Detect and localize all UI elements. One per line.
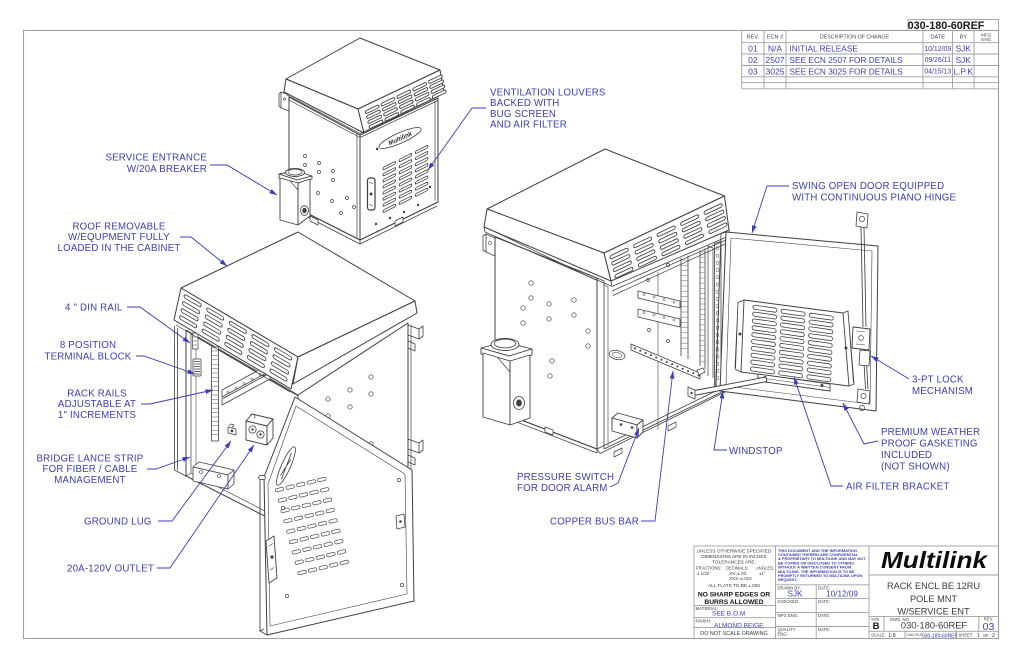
svg-text:3-PT LOCK: 3-PT LOCK [912,375,964,386]
svg-text:FOR DOOR ALARM: FOR DOOR ALARM [517,483,608,494]
svg-text:030-180-60REF: 030-180-60REF [908,20,985,32]
svg-text:LOADED IN THE CABINET: LOADED IN THE CABINET [58,243,181,254]
svg-text:ECN #: ECN # [767,35,784,41]
svg-text:COPPER BUS BAR: COPPER BUS BAR [550,517,639,528]
svg-text:10/12/09: 10/12/09 [826,590,858,599]
svg-text:REV.: REV. [747,35,760,41]
svg-text:PRESSURE SWITCH: PRESSURE SWITCH [517,472,614,483]
svg-text:ALMOND BEIGE: ALMOND BEIGE [714,623,764,630]
svg-text:20A-120V OUTLET: 20A-120V OUTLET [67,564,154,575]
svg-text:N/A: N/A [768,44,783,54]
svg-text:SWING OPEN DOOR EQUIPPED: SWING OPEN DOOR EQUIPPED [792,181,944,192]
svg-text:ANGLES:: ANGLES: [756,566,774,571]
svg-text:FINISH:: FINISH: [696,618,712,623]
svg-text:L.P.K: L.P.K [954,66,974,76]
svg-text:SEE ECN 3025 FOR DETAILS: SEE ECN 3025 FOR DETAILS [790,66,904,76]
svg-text:1:8: 1:8 [888,633,896,639]
svg-text:B: B [873,621,880,632]
svg-text:MFG ENG:: MFG ENG: [778,613,799,618]
svg-text:RACK ENCL BE 12RU: RACK ENCL BE 12RU [887,581,980,591]
svg-text:BY: BY [960,35,968,41]
svg-text:DATE:: DATE: [818,613,830,618]
svg-text:10/12/09: 10/12/09 [924,46,951,53]
svg-text:POLE MNT: POLE MNT [910,594,957,604]
svg-text:AIR FILTER BRACKET: AIR FILTER BRACKET [846,482,950,493]
svg-text:BACKED WITH: BACKED WITH [490,98,559,109]
svg-text:Multilink: Multilink [881,547,988,573]
svg-text:RACK RAILS: RACK RAILS [67,389,127,400]
svg-text:DATE: DATE [930,35,945,41]
svg-text:W/20A BREAKER: W/20A BREAKER [127,164,207,175]
svg-text:BRIDGE LANCE STRIP: BRIDGE LANCE STRIP [37,454,144,465]
svg-text:8 POSITION: 8 POSITION [60,340,116,351]
svg-text:SJK: SJK [956,44,972,54]
svg-text:SJK: SJK [956,55,972,65]
svg-text:SJK: SJK [787,590,803,599]
svg-text:NO SHARP EDGES OR: NO SHARP EDGES OR [698,592,771,599]
svg-text:TOLERANCES ARE:: TOLERANCES ARE: [712,560,756,565]
svg-text:CHECKED:: CHECKED: [778,599,800,604]
svg-text:SHEET: SHEET [959,632,973,637]
svg-text:DATE:: DATE: [818,599,830,604]
svg-text:PREMIUM WEATHER: PREMIUM WEATHER [881,427,980,438]
svg-text:BURRS ALLOWED: BURRS ALLOWED [704,599,763,606]
svg-text:WINDSTOP: WINDSTOP [729,446,783,457]
svg-text:± 1/32: ± 1/32 [697,571,710,576]
svg-text:DO NOT SCALE DRAWING: DO NOT SCALE DRAWING [700,631,767,637]
svg-text:DATE:: DATE: [818,627,830,632]
svg-text:3025: 3025 [765,66,784,76]
svg-text:ADJUSTABLE AT: ADJUSTABLE AT [58,399,136,410]
svg-text:W/SERVICE ENT: W/SERVICE ENT [897,607,970,617]
svg-text:OF: OF [983,633,989,638]
svg-text:ENG:: ENG: [778,632,788,637]
svg-text:ENG: ENG [981,37,991,42]
svg-text:SCALE: SCALE [871,632,885,637]
svg-text:030-180-60REF: 030-180-60REF [922,633,958,639]
svg-text:ALL FLATS TO BE ±.005: ALL FLATS TO BE ±.005 [708,583,760,588]
svg-text:DIMENSIONS ARE IN INCHES: DIMENSIONS ARE IN INCHES [701,554,766,559]
svg-text:.XXX=±.010: .XXX=±.010 [728,576,752,581]
svg-text:SERVICE ENTRANCE: SERVICE ENTRANCE [105,153,207,164]
svg-text:W/EQUPMENT FULLY: W/EQUPMENT FULLY [68,232,170,243]
svg-text:030-180-60REF: 030-180-60REF [901,621,967,631]
svg-text:ROOF REMOVABLE: ROOF REMOVABLE [72,222,165,233]
svg-text:PROOF GASKETING: PROOF GASKETING [881,439,978,450]
svg-text:WITH CONTINUOUS PIANO HINGE: WITH CONTINUOUS PIANO HINGE [792,193,957,204]
svg-text:SEE ECN 2507 FOR DETAILS: SEE ECN 2507 FOR DETAILS [790,55,904,65]
svg-text:1" INCREMENTS: 1" INCREMENTS [58,410,137,421]
svg-text:GROUND LUG: GROUND LUG [84,517,152,528]
svg-text:2: 2 [992,633,995,639]
svg-text:1: 1 [977,633,980,639]
svg-text:04/15/13: 04/15/13 [924,69,951,76]
svg-text:VENTILATION LOUVERS: VENTILATION LOUVERS [490,88,606,99]
svg-text:±1°: ±1° [759,571,766,576]
svg-text:DECIMALS:: DECIMALS: [726,566,749,571]
svg-text:FRACTIONS:: FRACTIONS: [696,566,721,571]
svg-text:AND AIR FILTER: AND AIR FILTER [490,120,567,131]
svg-text:4 " DIN RAIL: 4 " DIN RAIL [65,303,123,314]
svg-text:03: 03 [983,621,995,633]
svg-text:01: 01 [748,44,758,54]
svg-text:UNLESS OTHERWISE SPECIFIED: UNLESS OTHERWISE SPECIFIED [697,549,772,554]
svg-text:REQUEST.: REQUEST. [778,577,797,582]
svg-text:02: 02 [748,55,758,65]
svg-text:09/26/11: 09/26/11 [925,57,951,64]
svg-text:MANAGEMENT: MANAGEMENT [54,475,125,486]
svg-text:BUG SCREEN: BUG SCREEN [490,109,556,120]
svg-text:TERMINAL BLOCK: TERMINAL BLOCK [45,352,132,363]
svg-text:INITIAL RELEASE: INITIAL RELEASE [790,44,859,54]
svg-text:DESCRIPTION OF CHANGE: DESCRIPTION OF CHANGE [820,35,890,41]
svg-text:03: 03 [748,66,758,76]
svg-text:(NOT SHOWN): (NOT SHOWN) [881,462,950,473]
svg-text:INCLUDED: INCLUDED [881,450,932,461]
svg-text:2507: 2507 [765,55,784,65]
svg-text:SEE B.O.M: SEE B.O.M [712,611,745,618]
svg-text:FOR FIBER / CABLE: FOR FIBER / CABLE [43,464,138,475]
svg-text:MECHANISM: MECHANISM [912,386,973,397]
